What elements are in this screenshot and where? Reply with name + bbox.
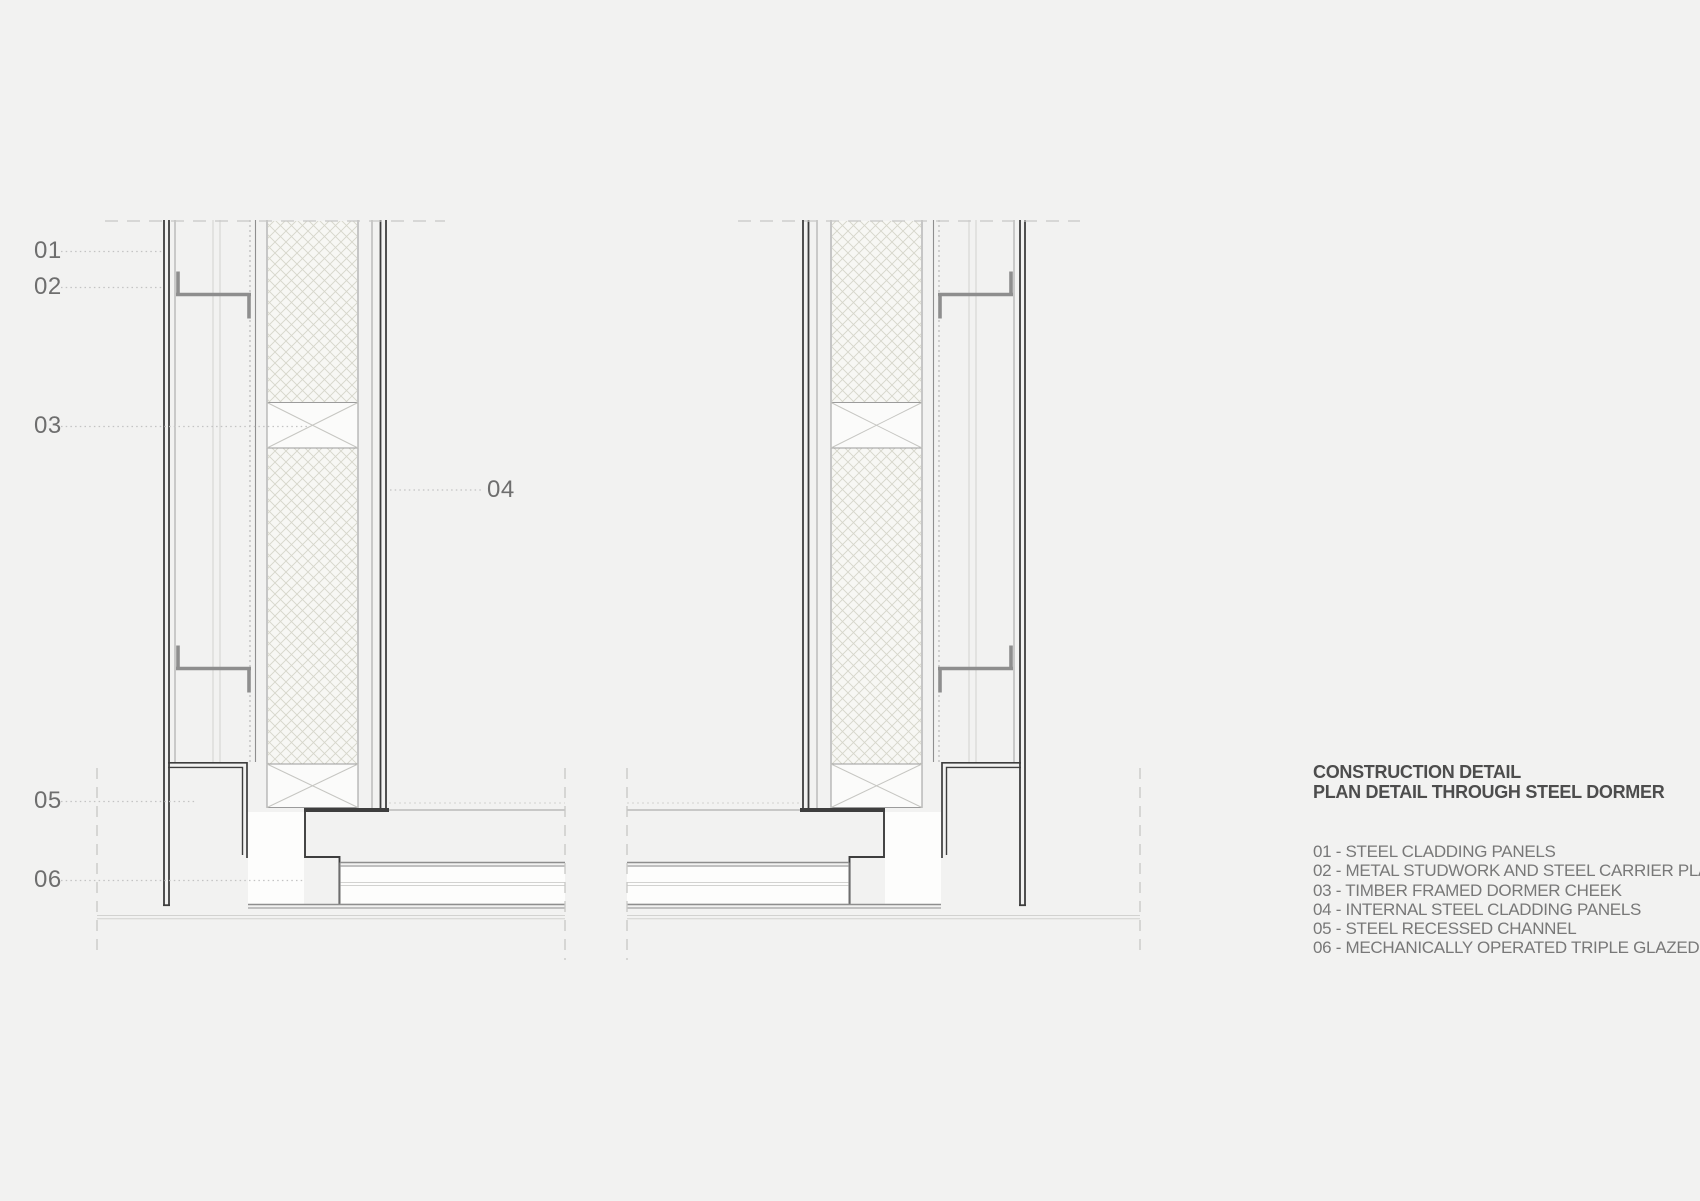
legend-item-list: 01 - STEEL CLADDING PANELS 02 - METAL ST… [1313, 842, 1700, 958]
legend-item-06: 06 - MECHANICALLY OPERATED TRIPLE GLAZED… [1313, 938, 1700, 957]
legend-item-02: 02 - METAL STUDWORK AND STEEL CARRIER PL… [1313, 861, 1700, 880]
callout-02: 02 [34, 272, 62, 302]
legend-item-04: 04 - INTERNAL STEEL CLADDING PANELS [1313, 900, 1700, 919]
callout-03: 03 [34, 411, 62, 441]
legend-item-05: 05 - STEEL RECESSED CHANNEL [1313, 919, 1700, 938]
legend-item-01: 01 - STEEL CLADDING PANELS [1313, 842, 1700, 861]
legend-title-line2: PLAN DETAIL THROUGH STEEL DORMER [1313, 782, 1664, 802]
callout-04: 04 [487, 475, 515, 505]
construction-detail-sheet: 01 02 03 04 05 06 CONSTRUCTION DETAIL PL… [0, 0, 1700, 1201]
callout-01: 01 [34, 236, 62, 266]
legend-title: CONSTRUCTION DETAIL PLAN DETAIL THROUGH … [1313, 762, 1664, 802]
callout-06: 06 [34, 865, 62, 895]
construction-detail-drawing [0, 0, 1700, 1201]
legend-item-03: 03 - TIMBER FRAMED DORMER CHEEK [1313, 881, 1700, 900]
callout-05: 05 [34, 786, 62, 816]
legend-title-line1: CONSTRUCTION DETAIL [1313, 762, 1664, 782]
